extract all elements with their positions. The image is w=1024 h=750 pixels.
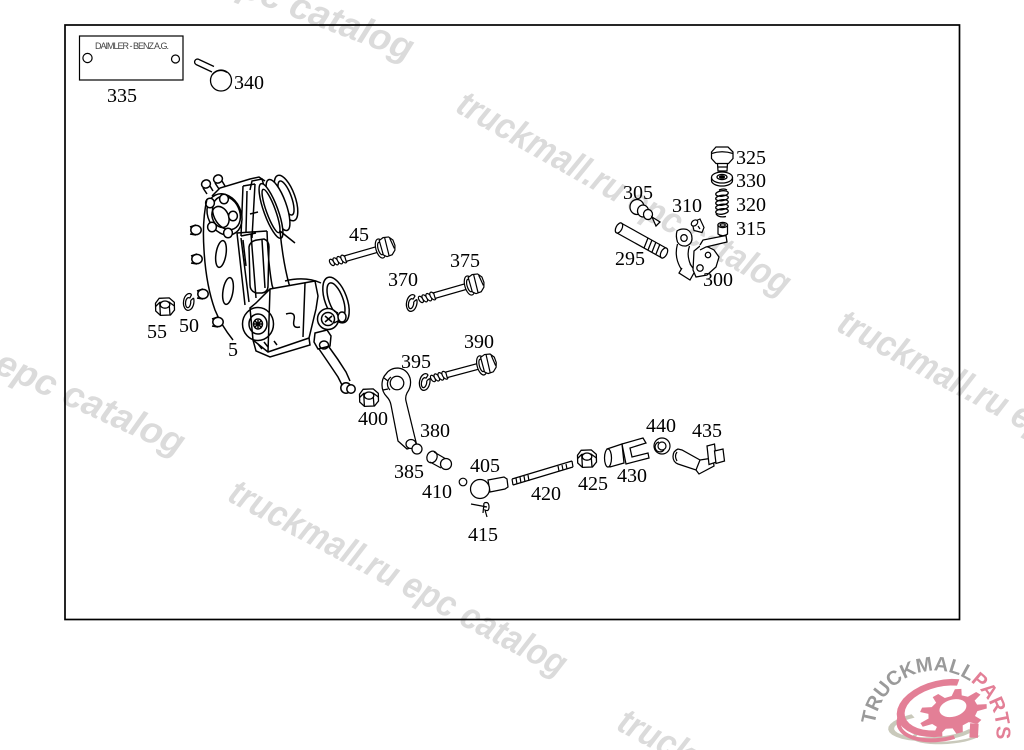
svg-text:epc catalog: epc catalog [215, 0, 420, 68]
svg-text:5: 5 [228, 339, 238, 361]
svg-text:400: 400 [358, 408, 388, 430]
svg-text:340: 340 [234, 72, 264, 94]
svg-text:435: 435 [692, 420, 722, 442]
svg-text:420: 420 [531, 483, 561, 505]
svg-text:50: 50 [179, 315, 199, 337]
svg-text:310: 310 [672, 195, 702, 217]
svg-text:DAIMLER - BENZ A.G.: DAIMLER - BENZ A.G. [95, 41, 169, 51]
svg-text:390: 390 [464, 331, 494, 353]
svg-text:410: 410 [422, 481, 452, 503]
svg-text:415: 415 [468, 524, 498, 546]
svg-text:315: 315 [736, 218, 766, 240]
svg-text:395: 395 [401, 351, 431, 373]
svg-text:295: 295 [615, 248, 645, 270]
svg-text:truckmall.ru epc: truckmall.ru epc [831, 301, 1024, 456]
svg-text:375: 375 [450, 250, 480, 272]
svg-text:truckmall.ru epc catalog: truckmall.ru epc catalog [222, 471, 574, 684]
svg-text:440: 440 [646, 415, 676, 437]
svg-text:430: 430 [617, 465, 647, 487]
svg-text:300: 300 [703, 269, 733, 291]
svg-text:335: 335 [107, 85, 137, 107]
svg-text:45: 45 [349, 224, 369, 246]
svg-text:330: 330 [736, 170, 766, 192]
svg-text:405: 405 [470, 455, 500, 477]
svg-text:325: 325 [736, 147, 766, 169]
svg-text:truckmall: truckmall [611, 700, 760, 750]
svg-text:305: 305 [623, 182, 653, 204]
svg-text:55: 55 [147, 321, 167, 343]
svg-text:425: 425 [578, 473, 608, 495]
svg-text:380: 380 [420, 420, 450, 442]
svg-text:370: 370 [388, 269, 418, 291]
svg-text:320: 320 [736, 194, 766, 216]
svg-text:385: 385 [394, 461, 424, 483]
svg-text:ll epc catalog: ll epc catalog [0, 329, 192, 464]
